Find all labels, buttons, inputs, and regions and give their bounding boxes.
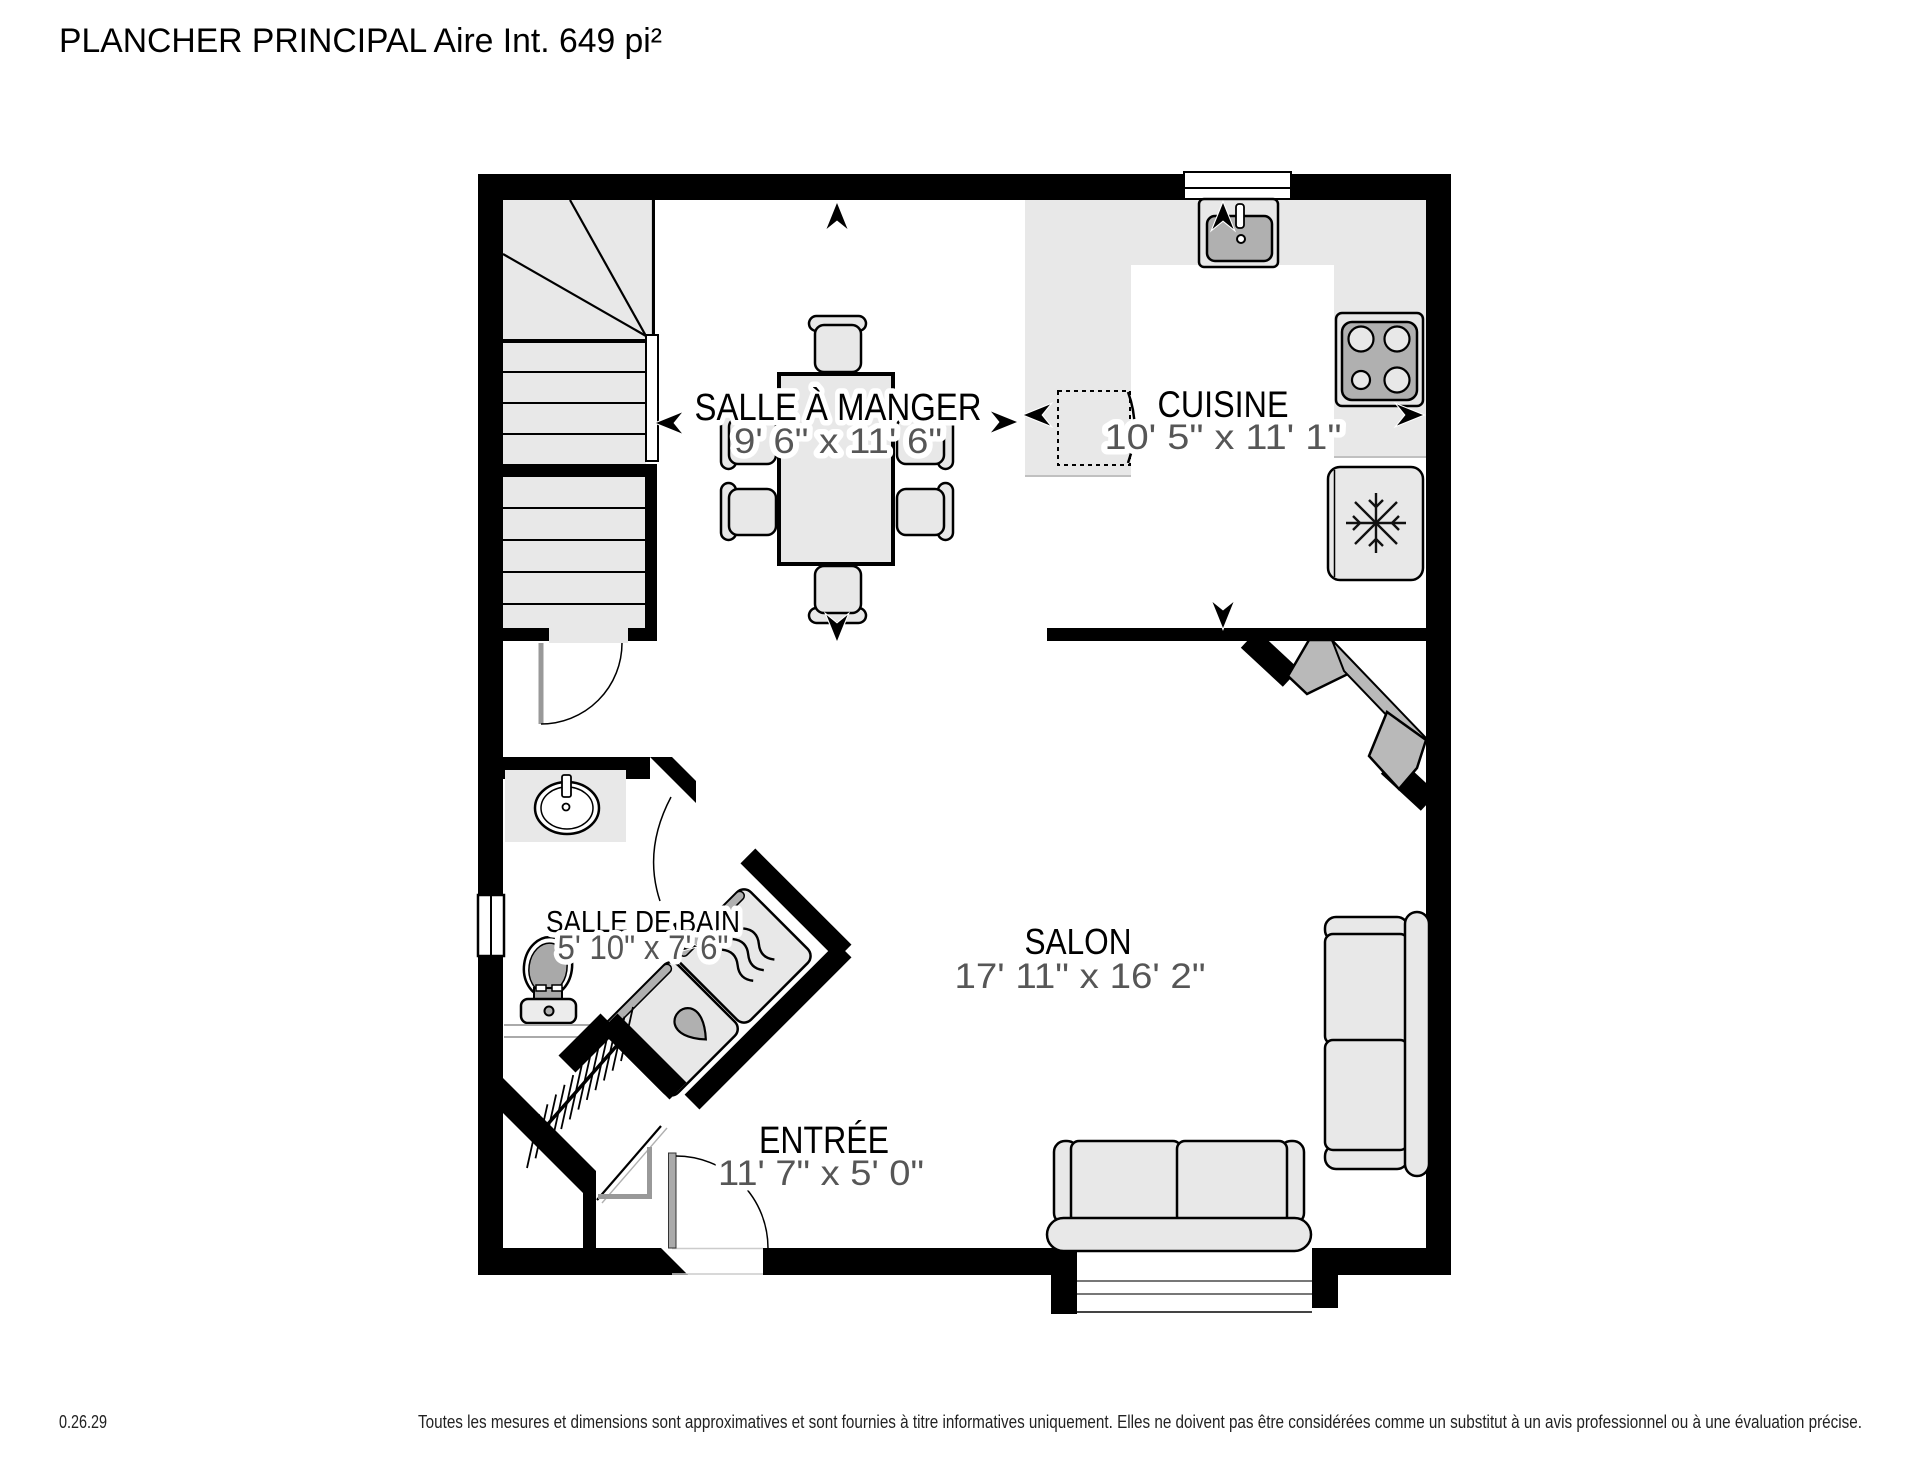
svg-text:9' 6" x 11' 6": 9' 6" x 11' 6" xyxy=(734,422,942,461)
svg-text:5' 10" x 7' 6": 5' 10" x 7' 6" xyxy=(558,929,729,967)
svg-text:PLANCHER PRINCIPAL Aire Int. 6: PLANCHER PRINCIPAL Aire Int. 649 pi² xyxy=(59,22,662,60)
svg-text:SALON: SALON xyxy=(1025,921,1132,962)
svg-text:17' 11" x 16' 2": 17' 11" x 16' 2" xyxy=(955,957,1206,996)
svg-text:10' 5" x 11' 1": 10' 5" x 11' 1" xyxy=(1105,418,1342,457)
svg-text:Toutes les mesures et dimensio: Toutes les mesures et dimensions sont ap… xyxy=(418,1412,1862,1432)
svg-text:0.26.29: 0.26.29 xyxy=(59,1412,107,1432)
svg-text:11' 7" x 5' 0": 11' 7" x 5' 0" xyxy=(718,1154,924,1193)
